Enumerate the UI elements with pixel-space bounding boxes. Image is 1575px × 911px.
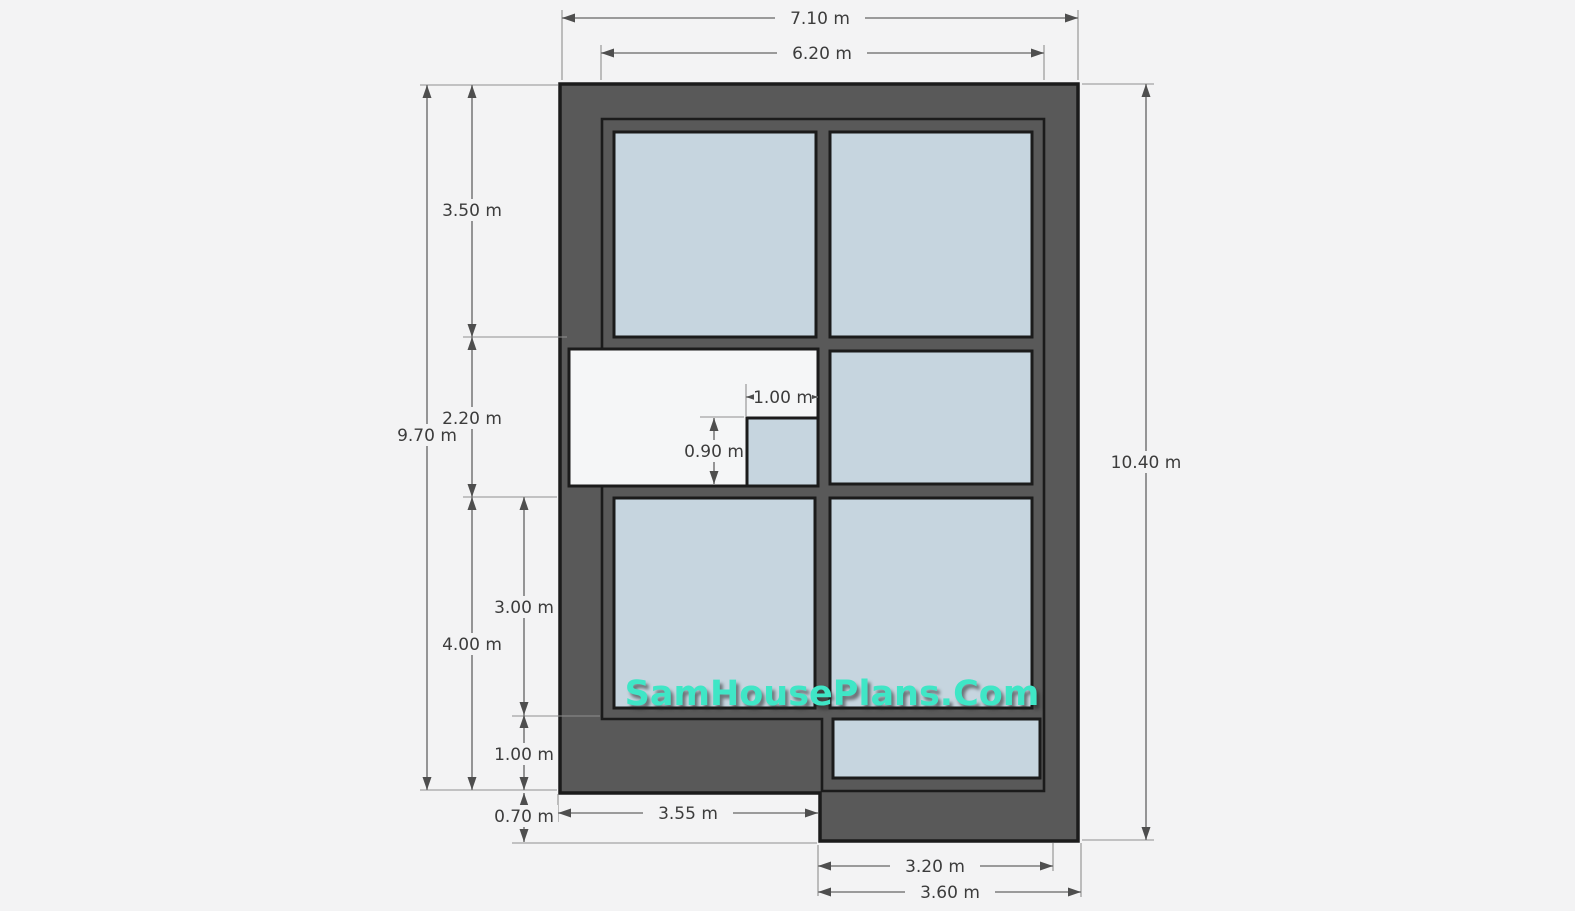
floor-plan-canvas: 7.10 m 6.20 m 3.50 m 2.20 m 9.70 m 3.00 … [0, 0, 1575, 911]
dimension-inner-width: 6.20 m [601, 42, 1044, 64]
dimension-niche-width: 1.00 m [746, 386, 818, 408]
floor-plan-drawing: 7.10 m 6.20 m 3.50 m 2.20 m 9.70 m 3.00 … [0, 0, 1575, 911]
dimension-extension-width: 3.60 m [818, 881, 1081, 903]
dim-label-left-height: 9.70 m [397, 426, 457, 446]
building [560, 84, 1078, 841]
dim-label-bottom-step: 0.70 m [494, 807, 554, 827]
dimension-overall-width: 7.10 m [562, 7, 1078, 29]
room-bottom-small [833, 719, 1040, 778]
dimension-bottom-step: 0.70 m [490, 793, 558, 842]
room-mid-right [830, 351, 1032, 484]
room-top-right [830, 132, 1032, 337]
dimension-lower-inner-height: 3.00 m [492, 497, 556, 715]
dimension-lower-wall-band: 1.00 m [492, 715, 556, 790]
dim-label-upper-height: 3.50 m [442, 201, 502, 221]
dimension-bottom-left-width: 3.55 m [558, 802, 818, 824]
dim-label-overall-height: 10.40 m [1111, 453, 1182, 473]
dim-label-overall-width: 7.10 m [790, 9, 850, 29]
dim-label-lower-height: 4.00 m [442, 635, 502, 655]
dim-label-extension-inner-width: 3.20 m [905, 857, 965, 877]
room-top-left [614, 132, 816, 337]
dimension-extension-inner-width: 3.20 m [818, 855, 1053, 877]
dim-label-lower-inner-height: 3.00 m [494, 598, 554, 618]
dim-label-extension-width: 3.60 m [920, 883, 980, 903]
room-porch-niche [747, 418, 818, 486]
watermark-text: SamHousePlans.Com [607, 674, 1057, 714]
dim-label-niche-width: 1.00 m [753, 388, 813, 408]
dimension-upper-height: 3.50 m [440, 85, 504, 337]
dimension-porch-height: 2.20 m [440, 337, 504, 497]
dimension-overall-height: 10.40 m [1109, 84, 1183, 840]
dim-label-lower-wall-band: 1.00 m [494, 745, 554, 765]
dim-label-bottom-left-width: 3.55 m [658, 804, 718, 824]
dimension-left-height: 9.70 m [395, 85, 459, 790]
dim-label-niche-height: 0.90 m [684, 442, 744, 462]
dim-label-inner-width: 6.20 m [792, 44, 852, 64]
